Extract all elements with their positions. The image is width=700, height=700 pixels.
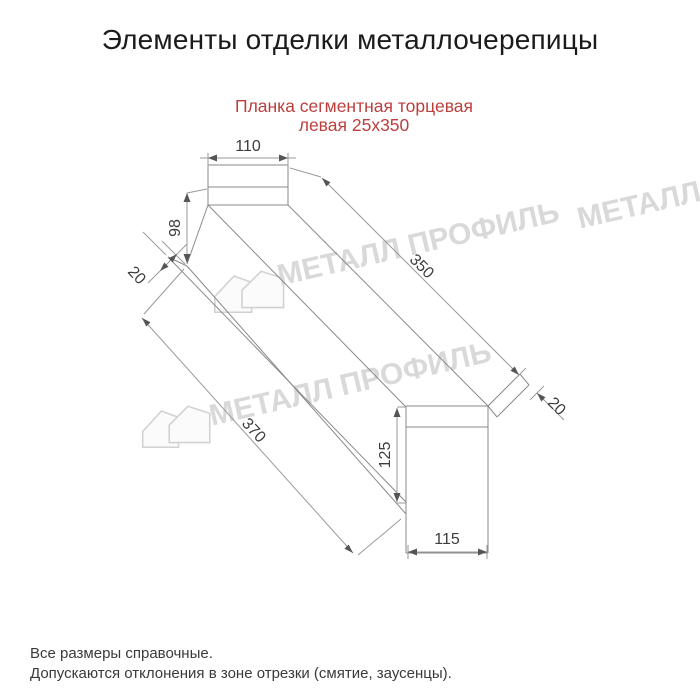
dimension-top-cap-width: 110 — [235, 138, 261, 156]
technical-drawing — [0, 0, 700, 700]
profile-outline — [168, 165, 529, 553]
dimension-left-end-height: 98 — [167, 219, 185, 237]
footer-note-2: Допускаются отклонения в зоне отрезки (с… — [30, 664, 452, 684]
product-drawing-page: МЕТАЛЛ ПРОФИЛЬ МЕТАЛЛ ПРОФИЛЬ МЕТАЛЛ ПРО… — [0, 0, 700, 700]
footer-note-1: Все размеры справочные. — [30, 644, 213, 664]
dimension-right-end-height: 125 — [377, 442, 395, 469]
dimension-right-end-width: 115 — [434, 531, 460, 549]
